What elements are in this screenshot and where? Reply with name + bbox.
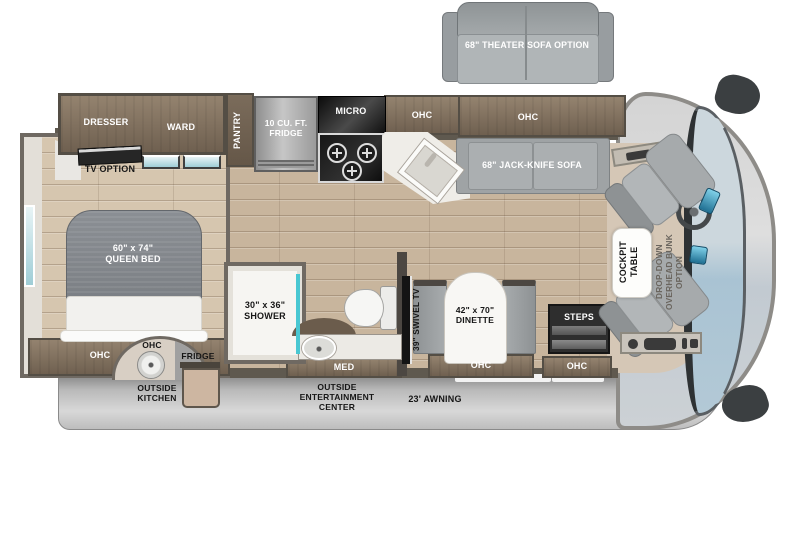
entry-ohc-label: OHC bbox=[542, 361, 612, 372]
outside-kitchen-ohc-label: OHC bbox=[130, 340, 174, 350]
fridge-label: 10 CU. FT. FRIDGE bbox=[254, 118, 318, 138]
theater-sofa-option: 68" THEATER SOFA OPTION bbox=[442, 2, 612, 88]
rv-floorplan: OUTSIDE KITCHEN OUTSIDE ENTERTAINMENT CE… bbox=[0, 0, 800, 545]
queen-bed-label: 60" x 74" QUEEN BED bbox=[66, 243, 200, 265]
microwave-label: MICRO bbox=[318, 106, 384, 117]
side-mirror-top-icon bbox=[712, 71, 765, 120]
bedroom-tv-icon bbox=[78, 145, 143, 165]
dashboard-bottom bbox=[620, 332, 702, 354]
burner-icon-2 bbox=[357, 143, 377, 163]
toilet-bowl-icon bbox=[344, 289, 384, 327]
steps-label: STEPS bbox=[548, 312, 610, 323]
burner-icon-1 bbox=[327, 143, 347, 163]
bunk-option-label: DROP-DOWN OVERHEAD BUNK OPTION bbox=[655, 212, 693, 332]
bedroom-window-2 bbox=[183, 155, 221, 169]
bath-sink-icon bbox=[302, 336, 336, 360]
cockpit-table-label: COCKPIT TABLE bbox=[618, 234, 644, 290]
shower-label: 30" x 36" SHOWER bbox=[228, 300, 302, 322]
pantry-label: PANTRY bbox=[232, 100, 248, 160]
step-tread-2 bbox=[552, 340, 606, 349]
theater-sofa-label: 68" THEATER SOFA OPTION bbox=[457, 40, 597, 51]
dinette-ohc-label: OHC bbox=[428, 360, 534, 371]
burner-icon-3 bbox=[342, 161, 362, 181]
outside-fridge-label: FRIDGE bbox=[174, 351, 222, 361]
swivel-tv-label: 39" SWIVEL TV bbox=[412, 272, 424, 368]
outside-entertainment-label: OUTSIDE ENTERTAINMENT CENTER bbox=[282, 382, 392, 413]
jack-knife-sofa-label: 68" JACK-KNIFE SOFA bbox=[458, 160, 606, 171]
tv-option-label: TV OPTION bbox=[68, 164, 152, 175]
step-tread-1 bbox=[552, 326, 606, 335]
bedroom-side-window bbox=[24, 205, 35, 287]
outside-sink-icon bbox=[137, 351, 165, 379]
ward-label: WARD bbox=[150, 122, 212, 133]
dinette-label: 42" x 70" DINETTE bbox=[440, 305, 510, 326]
awning-label: 23' AWNING bbox=[400, 394, 470, 405]
sofa-backrest bbox=[457, 2, 599, 38]
dresser-label: DRESSER bbox=[70, 117, 142, 128]
bedroom-ohc-label: OHC bbox=[60, 350, 140, 361]
med-label: MED bbox=[286, 362, 402, 373]
kitchen-ohc-label: OHC bbox=[384, 110, 460, 121]
fridge-vent bbox=[258, 160, 314, 168]
outside-kitchen-label: OUTSIDE KITCHEN bbox=[112, 383, 202, 403]
sofa-ohc-label: OHC bbox=[488, 112, 568, 123]
